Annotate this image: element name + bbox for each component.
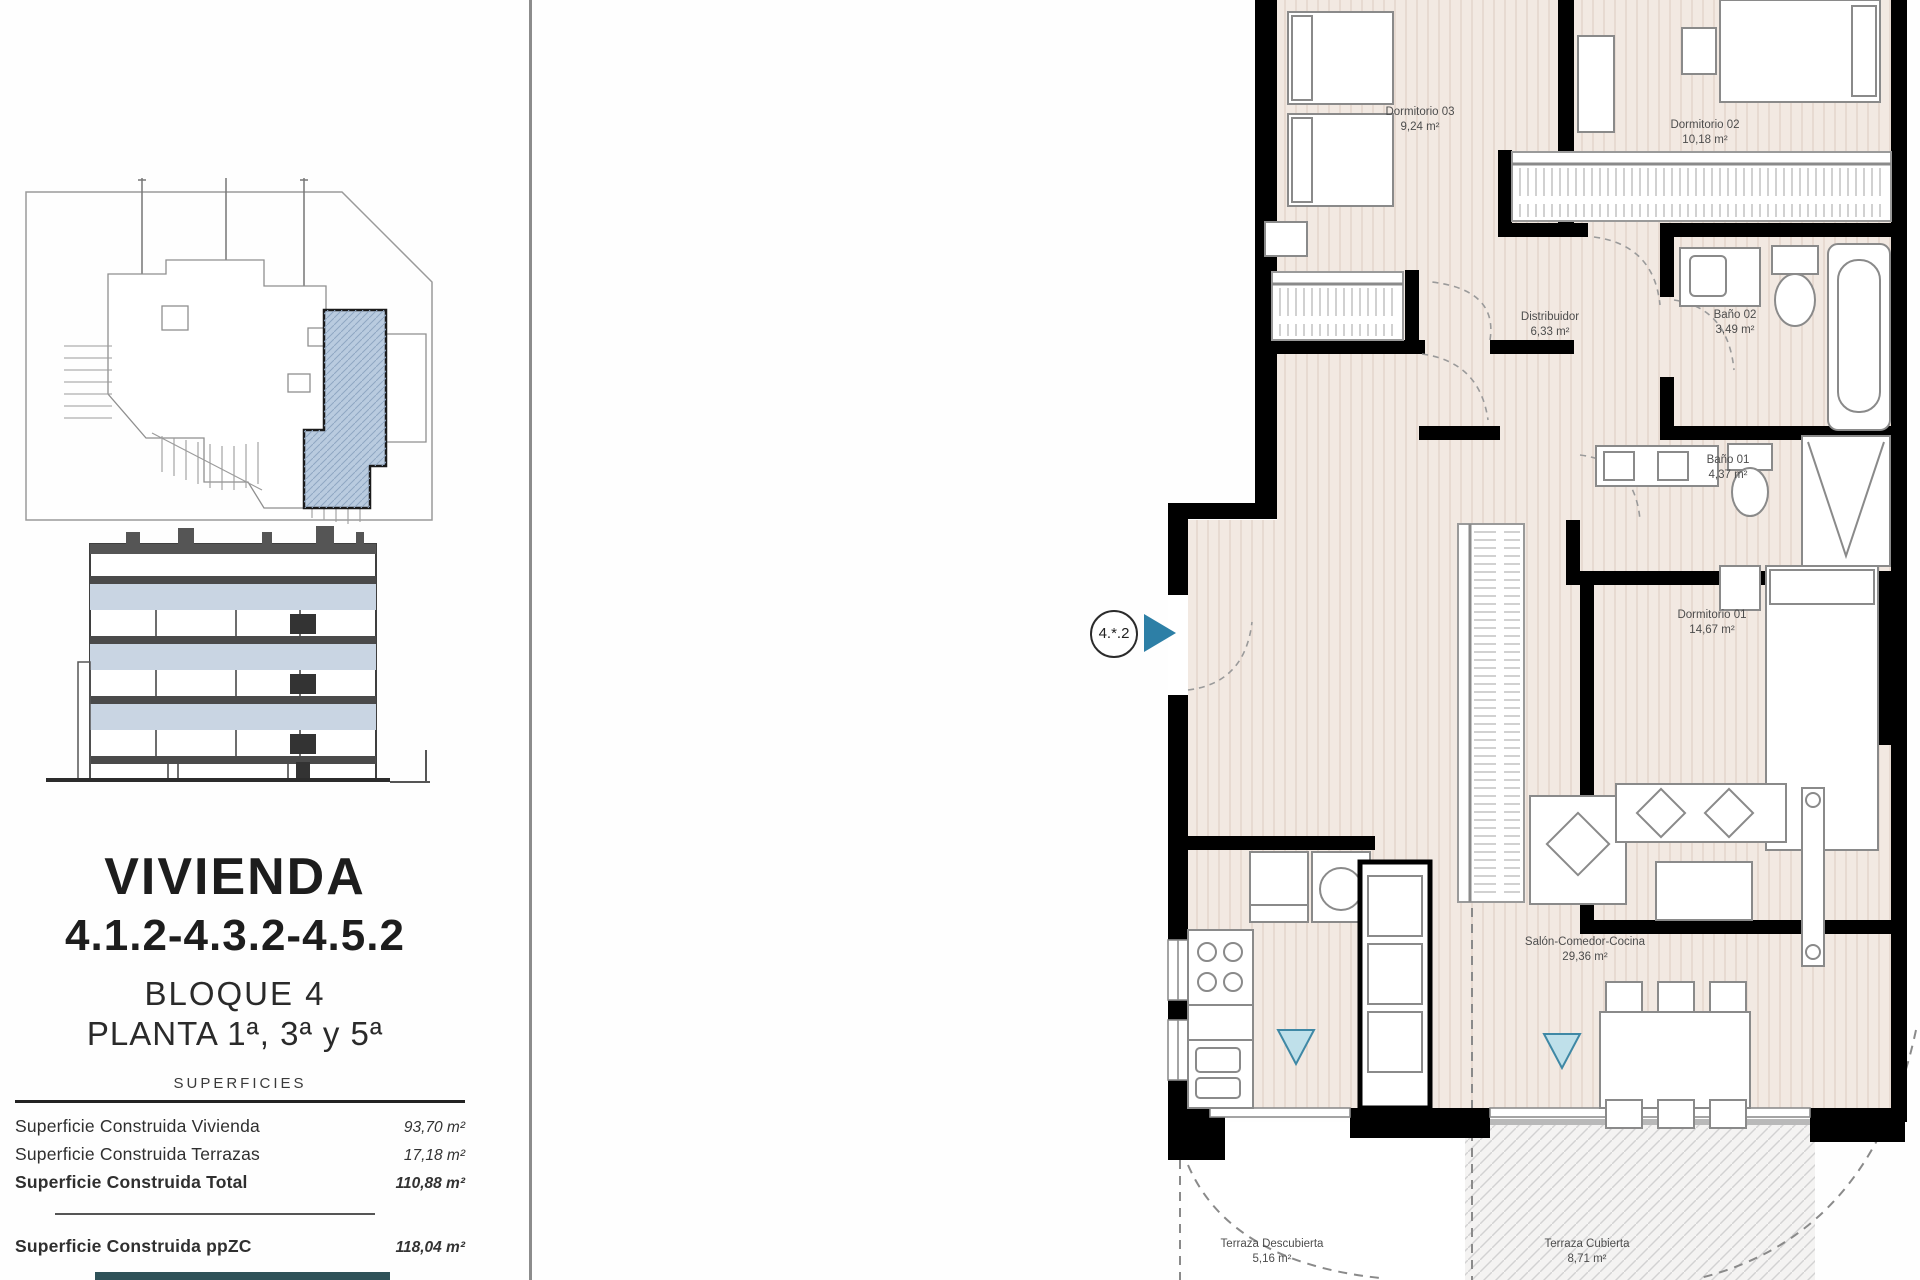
table-row-ppzc: Superficie Construida ppZC 118,04 m² [15,1233,465,1261]
room-label-dormitorio-01: Dormitorio 0114,67 m² [1677,608,1746,638]
room-label-bano-02: Baño 023,49 m² [1714,308,1757,338]
block-label: BLOQUE 4 [0,975,470,1013]
building-elevation [38,522,438,802]
page-title: VIVIENDA [0,850,470,905]
floors-label: PLANTA 1ª, 3ª y 5ª [0,1015,470,1053]
room-label-bano-01: Baño 014,37 m² [1707,453,1750,483]
table-row-total: Superficie Construida Total 110,88 m² [15,1169,465,1197]
site-key-plan [12,178,452,538]
surfaces-table: SUPERFICIES Superficie Construida Vivien… [15,1075,465,1261]
unit-code: 4.1.2-4.3.2-4.5.2 [0,911,470,961]
footer-logo-bar [95,1272,390,1280]
room-label-salon-comedor-cocina: Salón-Comedor-Cocina29,36 m² [1525,935,1645,965]
table-row: Superficie Construida Vivienda 93,70 m² [15,1113,465,1141]
room-label-dormitorio-03: Dormitorio 039,24 m² [1385,105,1454,135]
floor-plan: Dormitorio 039,24 m² Dormitorio 0210,18 … [1060,0,1920,1280]
surfaces-header: SUPERFICIES [15,1075,465,1103]
title-block: VIVIENDA 4.1.2-4.3.2-4.5.2 BLOQUE 4 PLAN… [0,850,470,1053]
room-label-distribuidor: Distribuidor6,33 m² [1521,310,1579,340]
info-panel: VIVIENDA 4.1.2-4.3.2-4.5.2 BLOQUE 4 PLAN… [0,0,530,1280]
plan-sheet: VIVIENDA 4.1.2-4.3.2-4.5.2 BLOQUE 4 PLAN… [0,0,1920,1280]
table-rule [55,1213,375,1215]
room-label-dormitorio-02: Dormitorio 0210,18 m² [1670,118,1739,148]
unit-marker-code: 4.*.2 [1090,610,1138,658]
room-label-terraza-descubierta: Terraza Descubierta5,16 m² [1221,1237,1324,1267]
entrance-arrow-icon [1144,614,1176,652]
table-row: Superficie Construida Terrazas 17,18 m² [15,1141,465,1169]
unit-marker: 4.*.2 [1090,610,1210,658]
room-label-terraza-cubierta: Terraza Cubierta8,71 m² [1544,1237,1629,1267]
